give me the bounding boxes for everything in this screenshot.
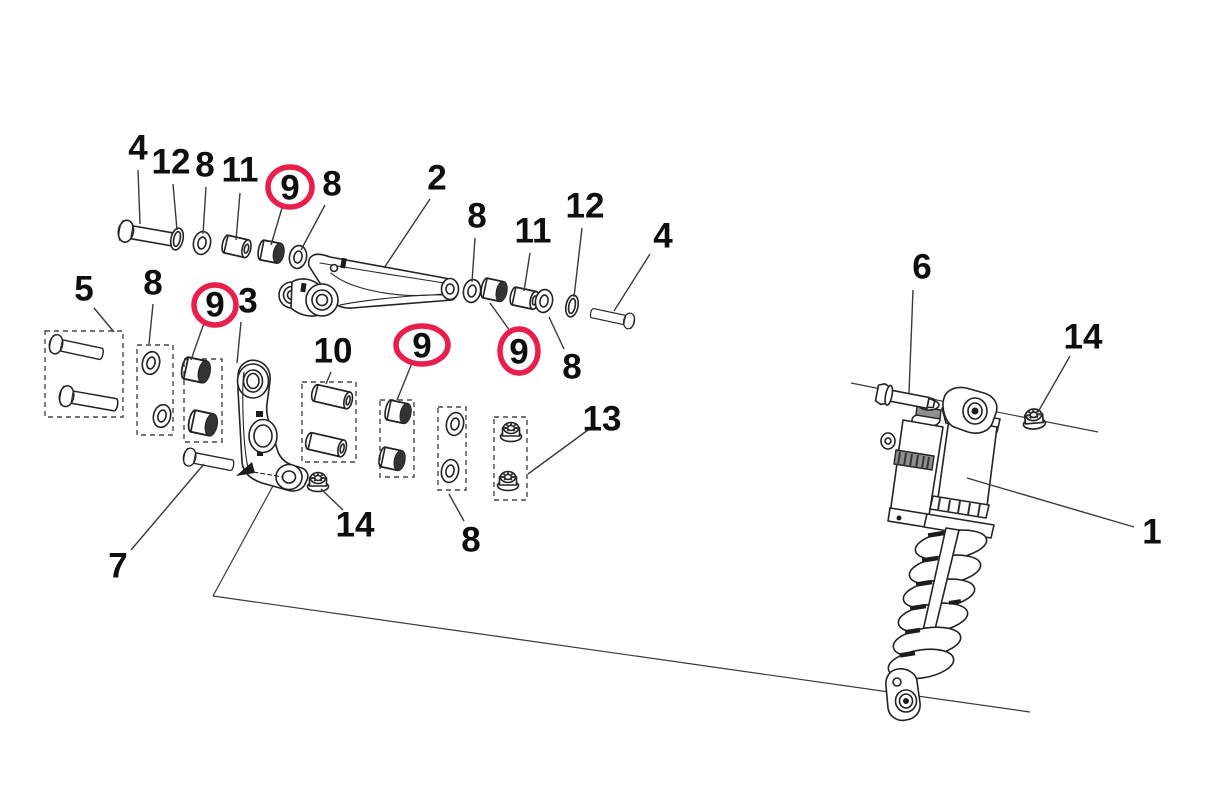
callout-label-part-5: 5 (74, 270, 93, 309)
callout-label-part-14: 14 (1064, 318, 1103, 357)
part-9-needle-bearing (479, 277, 508, 302)
part-8-washer (439, 458, 460, 484)
exploded-parts-diagram: 4128119828111249858931098131476141 (0, 0, 1211, 802)
callout-label-part-11: 11 (222, 151, 259, 190)
callout-label-part-8: 8 (467, 197, 486, 236)
callout-label-part-9: 9 (205, 286, 224, 325)
callout-leader-line-part-9 (397, 363, 412, 400)
callout-leader-line-part-12 (574, 228, 582, 297)
callout-label-part-8: 8 (562, 348, 581, 387)
part-2-linkage-arm (279, 254, 459, 316)
callout-label-part-6: 6 (912, 248, 931, 287)
part-14-flange-nut (1022, 408, 1046, 430)
callout-label-part-10: 10 (314, 332, 353, 371)
callout-leader-line-part-8 (549, 317, 564, 349)
callout-leader-line-part-13 (528, 430, 588, 474)
callout-label-part-4: 4 (128, 129, 148, 168)
middle-boxed-hardware (304, 384, 521, 491)
part-7-bolt (182, 447, 235, 474)
part-9-needle-bearing (383, 399, 412, 424)
upper-right-hardware-row (461, 277, 636, 329)
callout-label-part-3: 3 (238, 282, 257, 321)
callout-label-part-12: 12 (566, 187, 605, 226)
callout-leader-line-part-11 (236, 193, 240, 240)
part-13-flange-nut (498, 472, 519, 491)
part-3-rocker-link (236, 360, 308, 491)
callouts-layer: 4128119828111249858931098131476141 (74, 129, 1161, 586)
callout-label-part-4: 4 (653, 217, 673, 256)
callout-leader-line-part-11 (524, 253, 530, 291)
callout-leader-line-part-2 (384, 199, 430, 268)
part-9-needle-bearing (187, 409, 219, 436)
part-8-washer (287, 244, 308, 270)
part-13-flange-nut (501, 423, 522, 442)
callout-label-part-8: 8 (195, 146, 214, 185)
callout-label-part-9: 9 (412, 327, 431, 366)
part-8-washer (140, 350, 162, 376)
part-8-washer (151, 403, 173, 429)
callout-leader-line-part-9 (490, 303, 510, 331)
callout-label-part-12: 12 (152, 143, 191, 182)
part-10-pivot-sleeve (304, 432, 348, 458)
part-12-shim-washer (564, 294, 580, 318)
callout-label-part-9: 9 (280, 169, 299, 208)
linkage-axis-line-left (213, 473, 280, 596)
callout-label-part-9: 9 (509, 333, 528, 372)
callout-leader-line-part-8 (203, 187, 206, 234)
callout-leader-line-part-3 (237, 322, 241, 363)
part-12-shim-washer (169, 227, 185, 251)
callout-label-part-7: 7 (108, 547, 127, 586)
callout-label-part-8: 8 (143, 264, 162, 303)
callout-leader-line-part-7 (131, 464, 204, 550)
callout-label-part-2: 2 (427, 159, 446, 198)
callout-label-part-8: 8 (461, 521, 480, 560)
upper-left-hardware-row (117, 219, 309, 270)
callout-leader-line-part-4 (614, 254, 650, 311)
diagram-canvas: 4128119828111249858931098131476141 (0, 0, 1211, 802)
part-1-shock-absorber (881, 387, 1000, 720)
callout-leader-line-part-8 (472, 238, 475, 282)
callout-leader-line-part-1 (967, 478, 1134, 527)
part-5-bolt (58, 385, 120, 416)
part-9-needle-bearing (377, 446, 406, 471)
left-boxed-hardware (48, 333, 219, 436)
callout-label-part-1: 1 (1142, 513, 1161, 552)
callout-leader-line-part-12 (173, 184, 177, 230)
part-5-bolt (48, 333, 105, 363)
part-9-needle-bearing (180, 356, 212, 383)
callout-label-part-14: 14 (336, 506, 375, 545)
part-4-bolt (589, 305, 636, 330)
callout-label-part-13: 13 (583, 400, 622, 439)
callout-leader-line-part-4 (138, 170, 140, 224)
part-8-washer (191, 230, 212, 256)
callout-leader-line-part-8 (149, 304, 153, 344)
callout-leader-line-part-9 (191, 323, 204, 360)
callout-leader-line-part-6 (909, 290, 913, 393)
callout-leader-line-part-8 (449, 494, 464, 521)
callout-label-part-8: 8 (322, 165, 341, 204)
part-10-pivot-sleeve (310, 384, 354, 410)
callout-leader-line-part-14 (1038, 356, 1070, 412)
part-14-flange-nut (308, 473, 329, 492)
part-8-washer (444, 411, 465, 437)
callout-leader-line-part-8 (301, 205, 325, 250)
callout-leader-line-part-5 (94, 308, 114, 332)
callout-leader-line-part-9 (271, 208, 282, 245)
callout-label-part-11: 11 (515, 212, 552, 251)
